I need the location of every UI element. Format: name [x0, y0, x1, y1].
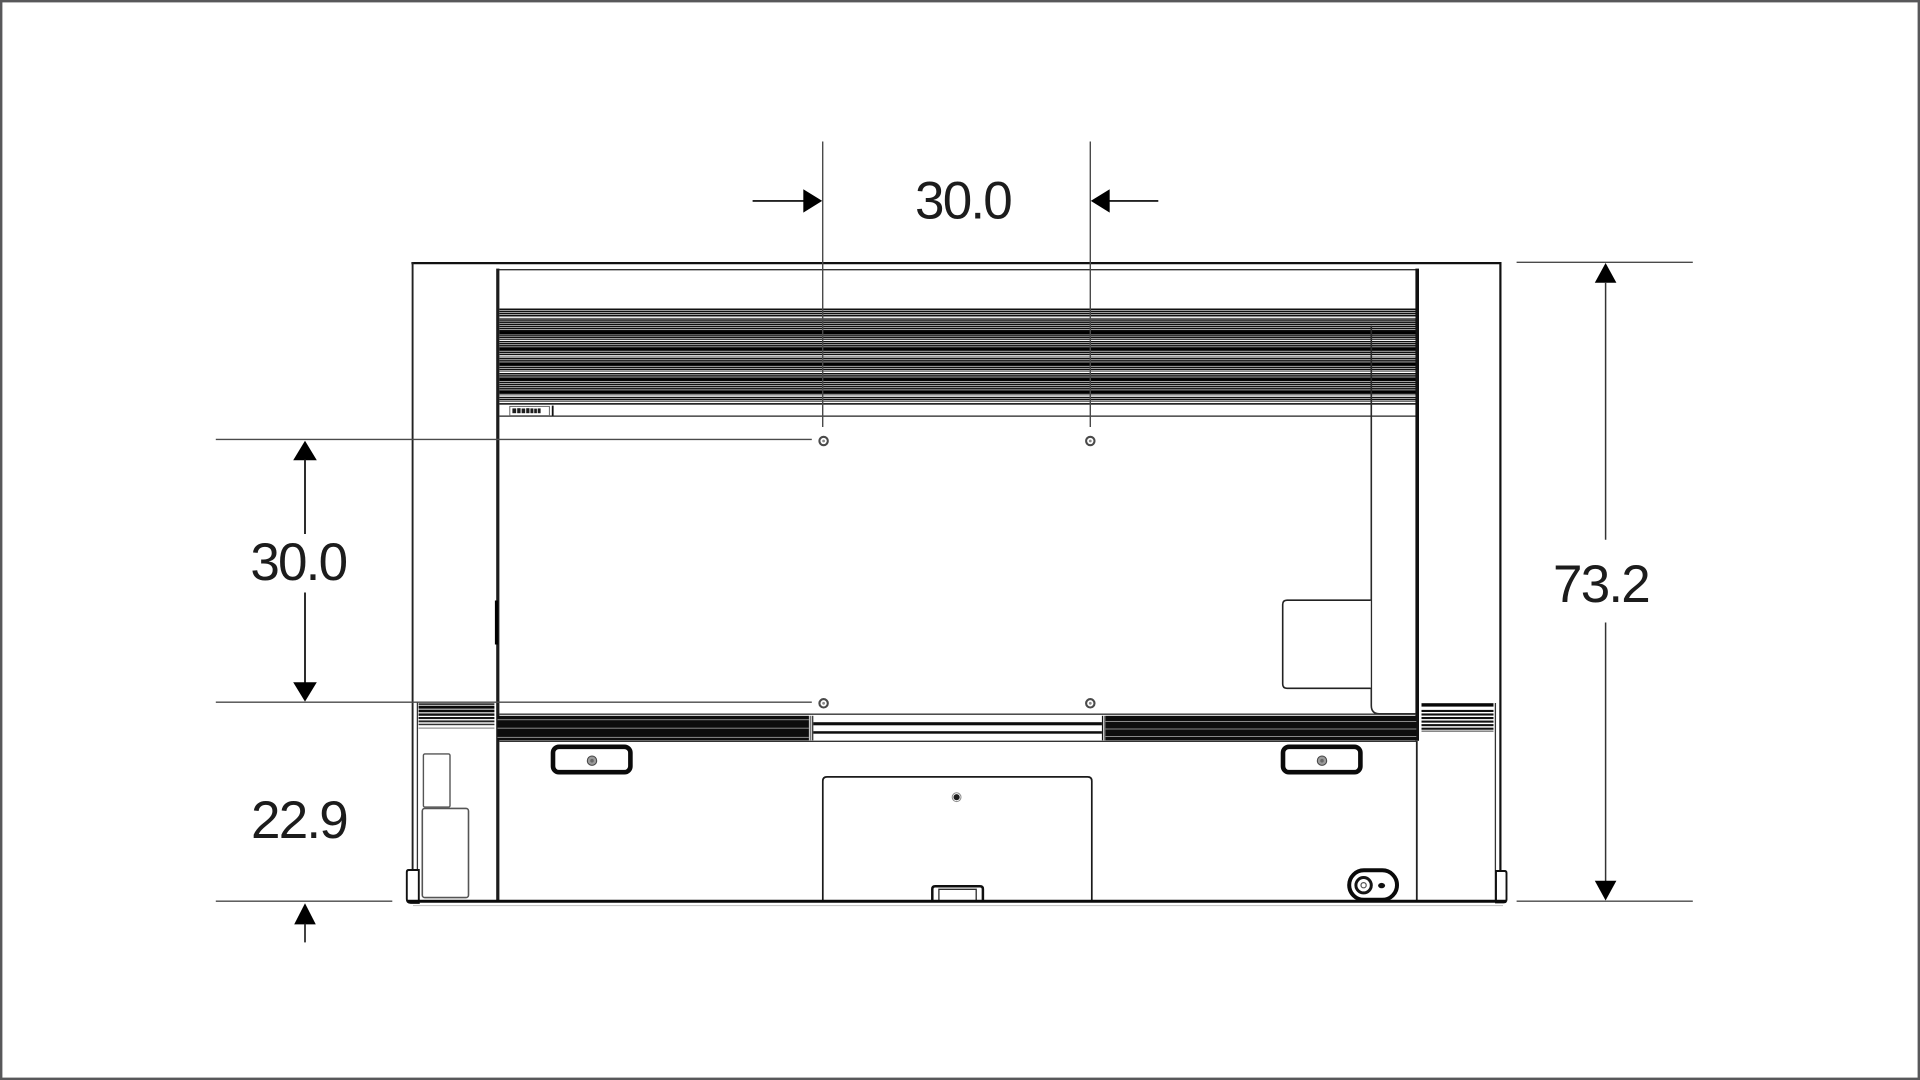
svg-text:30.0: 30.0 [915, 172, 1011, 231]
svg-text:22.9: 22.9 [251, 791, 347, 850]
svg-text:73.2: 73.2 [1553, 555, 1649, 614]
svg-text:30.0: 30.0 [250, 533, 346, 592]
